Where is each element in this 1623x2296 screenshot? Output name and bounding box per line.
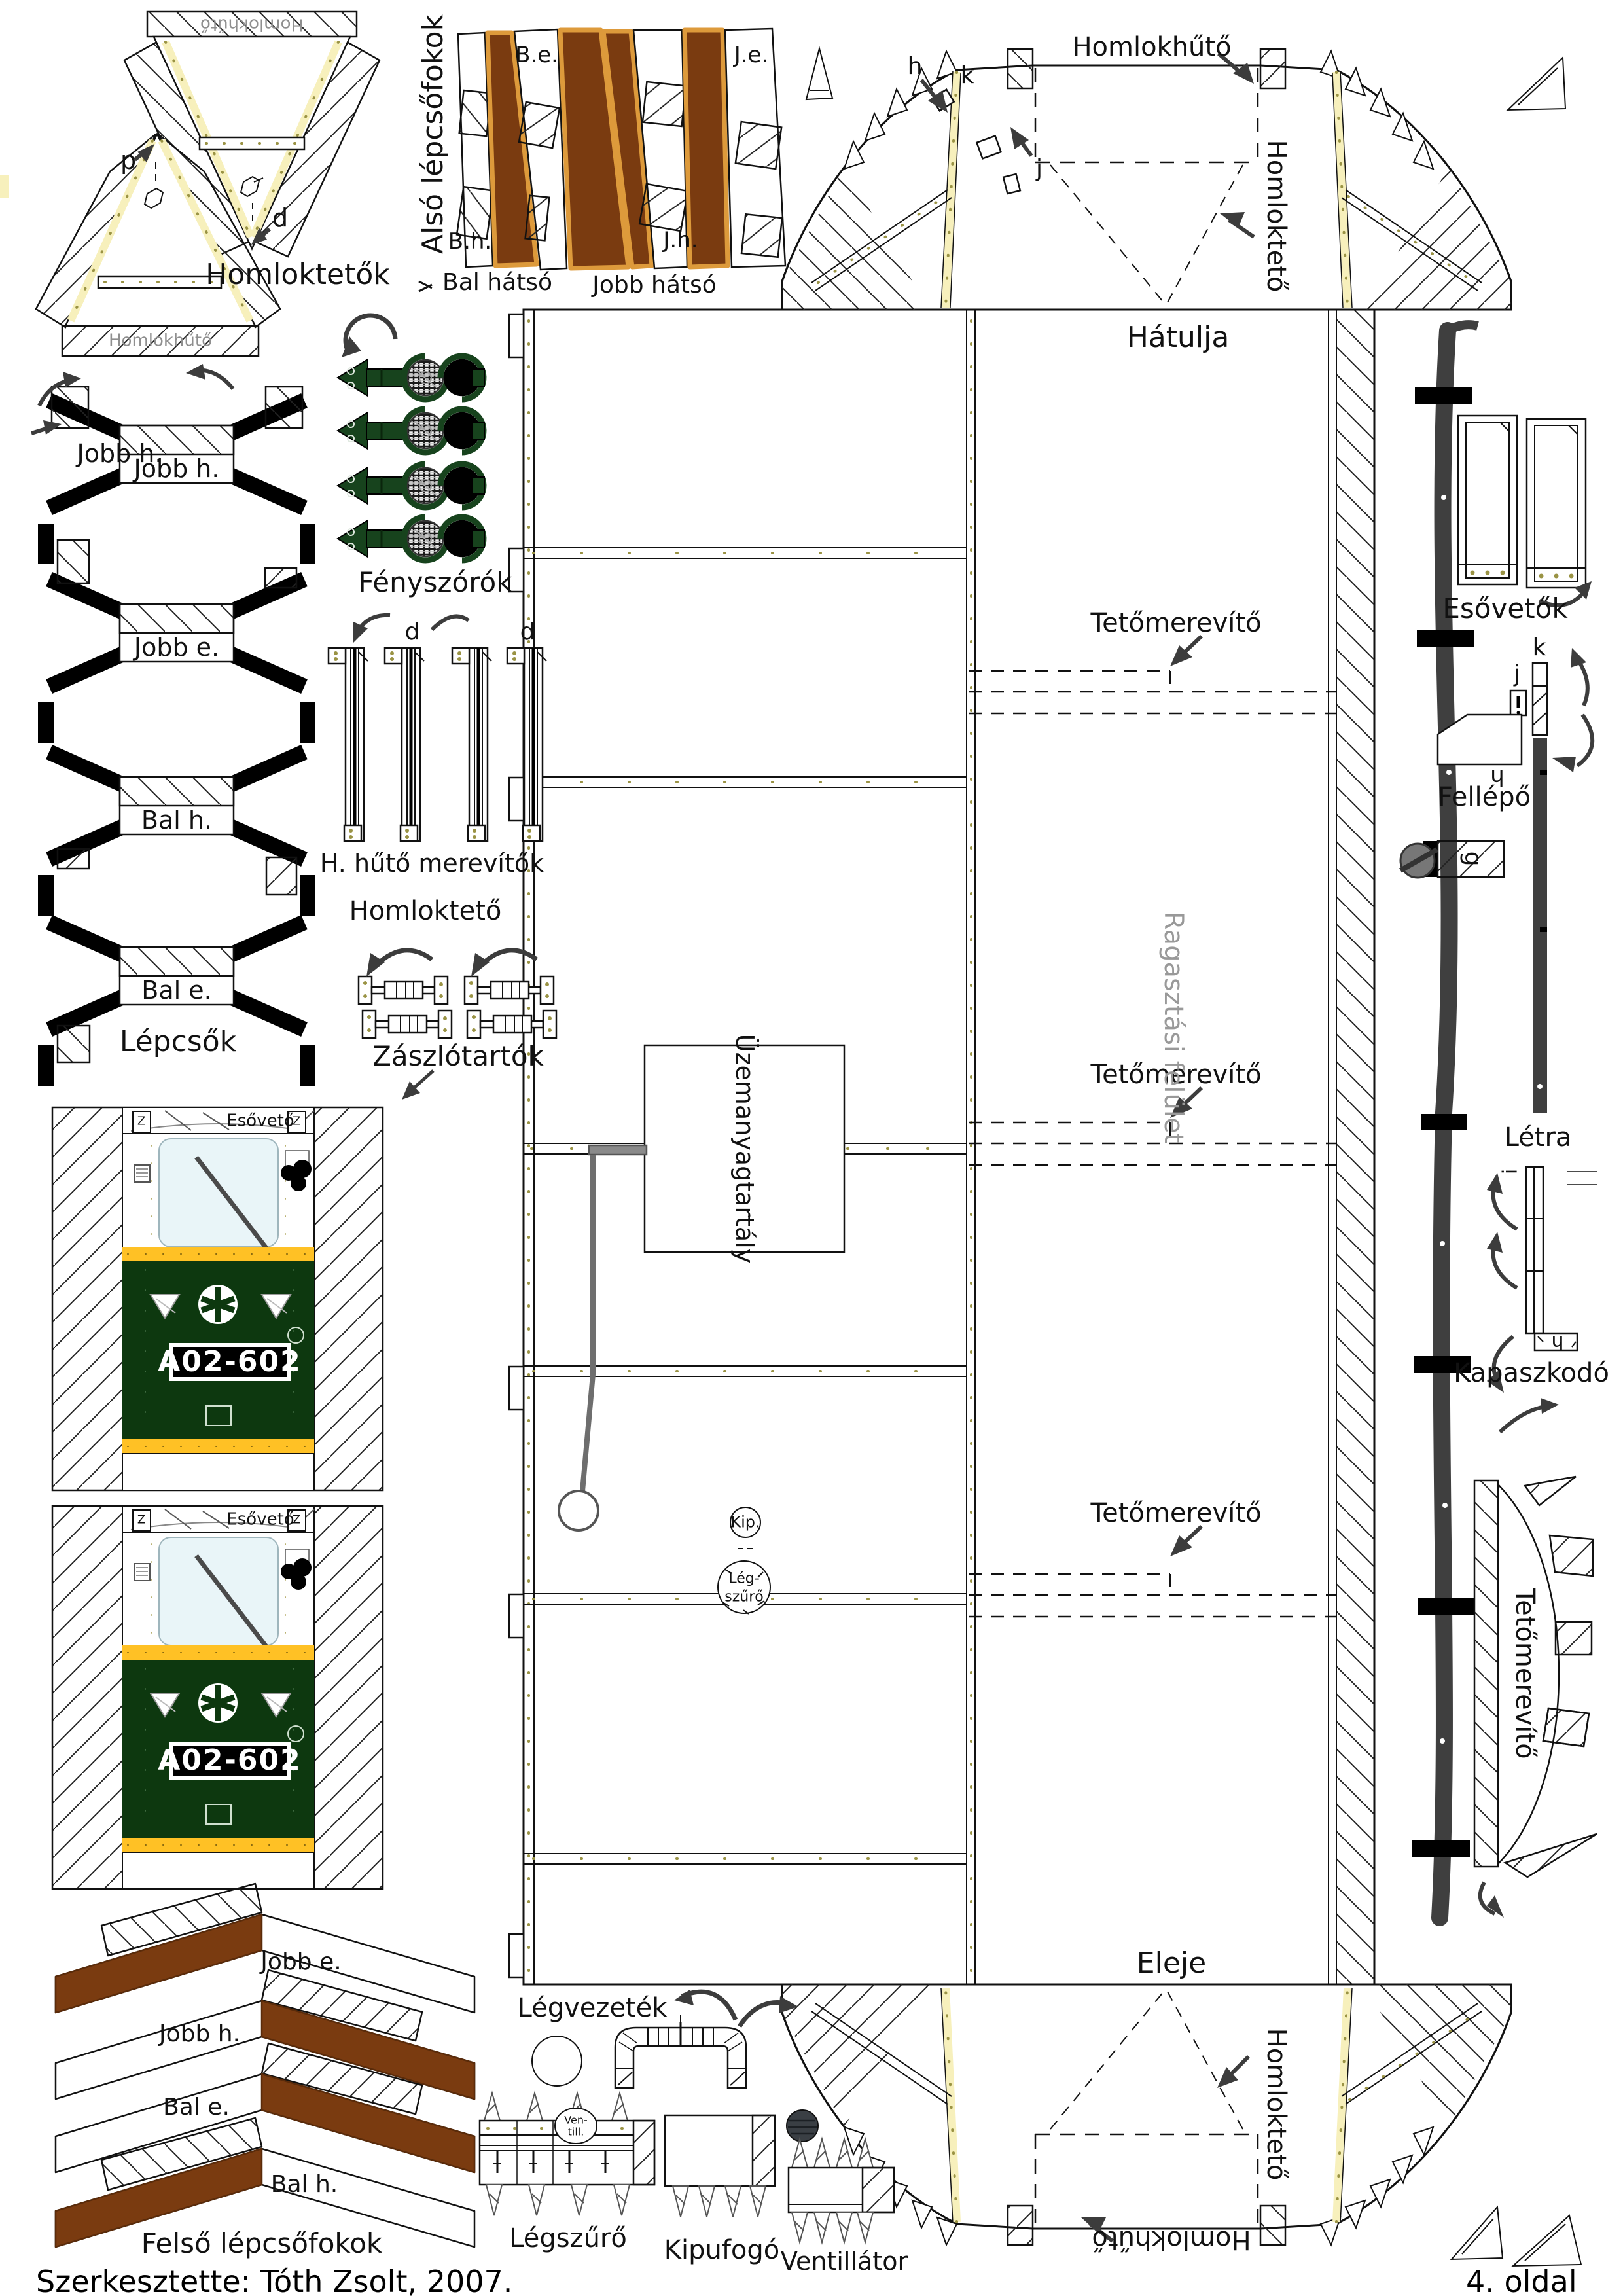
letter-i-right: i (1500, 1169, 1521, 1174)
label-jobb-hatso: Jobb hátsó (592, 273, 717, 298)
letter-j-rear: j (1036, 156, 1043, 181)
upper-steps-caption: Felső lépcsőfokok (141, 2229, 382, 2258)
air-filter-piece (480, 2093, 654, 2215)
front-roof-label: Homloktető (1262, 2028, 1290, 2181)
step-bal-e: Bal e. (141, 978, 211, 1004)
main-body-piece (509, 310, 1374, 1984)
upper-step-bal-h: Bal h. (271, 2172, 338, 2197)
fan-short-1: Ven- (564, 2115, 587, 2126)
glue-surface-label: Ragasztási felület (1160, 912, 1187, 1144)
upper-step-jobb-h: Jobb h. (159, 2022, 240, 2047)
front-roof-note: Homloktető (349, 897, 502, 925)
rear-caption: Hátulja (1127, 323, 1230, 353)
cab2-corner-z-right: Z (293, 1515, 300, 1527)
lower-steps-caption: Alsó lépcsőfokok (418, 14, 448, 254)
fellepo-caption: Fellépő (1438, 783, 1531, 811)
letter-j-right: j (1514, 662, 1520, 687)
fan-caption: Ventillátor (781, 2249, 908, 2275)
step-jobb-e: Jobb e. (134, 635, 219, 661)
step-bal-h: Bal h. (141, 808, 212, 834)
flag-holders-caption: Zászlótartók (372, 1042, 544, 1071)
credit-line: Szerkesztette: Tóth Zsolt, 2007. (36, 2266, 512, 2296)
label-jh: J.h. (663, 229, 698, 253)
air-filter-caption: Légszűrő (509, 2225, 627, 2252)
letter-k-right: k (1533, 636, 1546, 660)
roof-brace-label-1: Tetőmerevítő (1090, 609, 1261, 637)
letter-h-rear: h (908, 54, 923, 79)
front-caption: Eleje (1137, 1948, 1206, 1979)
radiator-braces-caption: H. hűtő merevítők (320, 851, 544, 877)
roof-brace-label-3: Tetőmerevítő (1090, 1499, 1261, 1527)
ladder-caption: Létra (1505, 1124, 1572, 1151)
front-roof-flap-label-top: Homlokhűtő (200, 15, 304, 33)
step-jobb-h: Jobb h. (134, 456, 220, 482)
upper-step-jobb-e: Jobb e. (260, 1950, 341, 1975)
right-column-pieces (1400, 325, 1597, 1918)
letter-d-triangle: d (272, 206, 288, 232)
label-be: B.e. (515, 44, 558, 67)
label-bh: B.h. (448, 230, 492, 254)
left-edge-tabs (509, 314, 524, 1977)
upper-step-bal-e: Bal e. (163, 2095, 230, 2120)
filter-mark-top: Lég- (728, 1571, 759, 1586)
sheet-line-art (0, 0, 1623, 2296)
air-duct-caption: Légvezeték (518, 1994, 668, 2022)
papercraft-sheet: Homloktetők Homlokhűtő Homlokhűtő p d Al… (0, 0, 1623, 2296)
label-bal-hatso: Bal hátsó (442, 270, 552, 295)
letter-h-grab: h (1551, 1331, 1563, 1352)
exhaust-caption: Kipufogó (664, 2236, 780, 2264)
exhaust-piece (665, 2115, 775, 2217)
side-steps-caption: Lépcsők (120, 1027, 236, 1057)
upper-step-pieces (56, 1884, 474, 2247)
cab1-corner-z-left: Z (137, 1116, 145, 1128)
letter-p: p (120, 148, 136, 174)
rear-roof-label: Homloktető (1262, 140, 1290, 293)
exhaust-mark: Kip. (730, 1514, 760, 1530)
front-radiator-label: Homlokhűtő (1092, 2226, 1251, 2253)
rain-deflectors-caption: Esővetők (1442, 594, 1567, 623)
front-roof-flap-label-bottom: Homlokhűtő (109, 332, 212, 350)
rear-radiator-label: Homlokhűtő (1072, 33, 1231, 61)
headlights-caption: Fényszórók (358, 568, 512, 597)
cab1-number-plate: A02-602 (158, 1347, 301, 1377)
roof-brace-right-label: Tetőmerevítő (1511, 1588, 1539, 1759)
letter-d-brace-1: d (405, 620, 420, 645)
front-roof-caption: Homloktetők (205, 260, 389, 290)
cab1-corner-z-right: Z (293, 1116, 300, 1128)
fan-short-2: till. (568, 2127, 584, 2138)
page-number: 4. oldal (1466, 2266, 1577, 2296)
filter-mark-bottom: szűrő (724, 1589, 763, 1604)
cab2-rain-label: Esővető (226, 1511, 294, 1528)
front-roof-triangles (0, 12, 395, 357)
rear-end-assembly (782, 49, 1511, 310)
letter-d-brace-2: d (520, 620, 535, 645)
grab-caption: Kapaszkodó (1454, 1359, 1609, 1387)
cab2-number-plate: A02-602 (158, 1746, 301, 1776)
cab2-corner-z-left: Z (137, 1515, 145, 1527)
cab1-rain-label: Esővető (226, 1112, 294, 1130)
letter-k-rear: k (961, 63, 974, 88)
fuel-tank-label: Üzemanyagtartály (731, 1034, 757, 1263)
letter-g-right: g (1460, 852, 1485, 867)
headlight-pieces (338, 356, 484, 560)
label-je: J.e. (734, 44, 769, 67)
cab-print-2 (52, 1506, 383, 1889)
cab-print-1 (52, 1107, 383, 1490)
